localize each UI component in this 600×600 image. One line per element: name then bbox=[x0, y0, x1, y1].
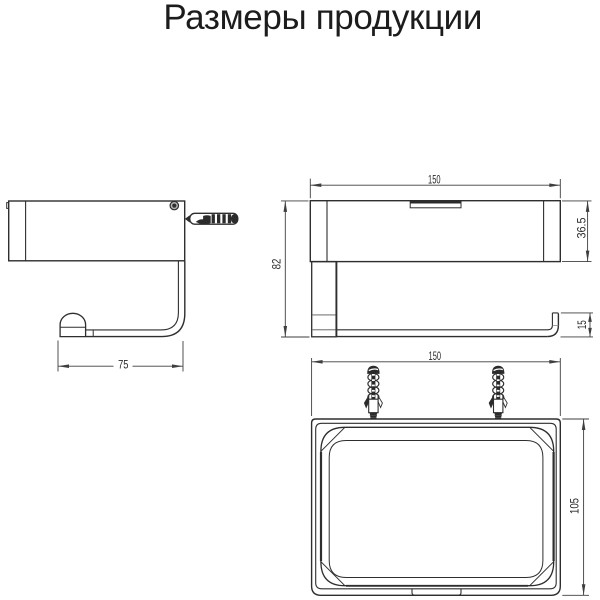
svg-text:150: 150 bbox=[429, 349, 442, 363]
svg-text:Размеры продукции: Размеры продукции bbox=[163, 0, 482, 37]
svg-text:75: 75 bbox=[118, 358, 129, 372]
svg-text:105: 105 bbox=[568, 498, 582, 514]
svg-text:82: 82 bbox=[269, 258, 283, 269]
svg-text:15: 15 bbox=[575, 320, 589, 329]
svg-text:36.5: 36.5 bbox=[574, 217, 588, 238]
svg-text:150: 150 bbox=[428, 173, 441, 187]
